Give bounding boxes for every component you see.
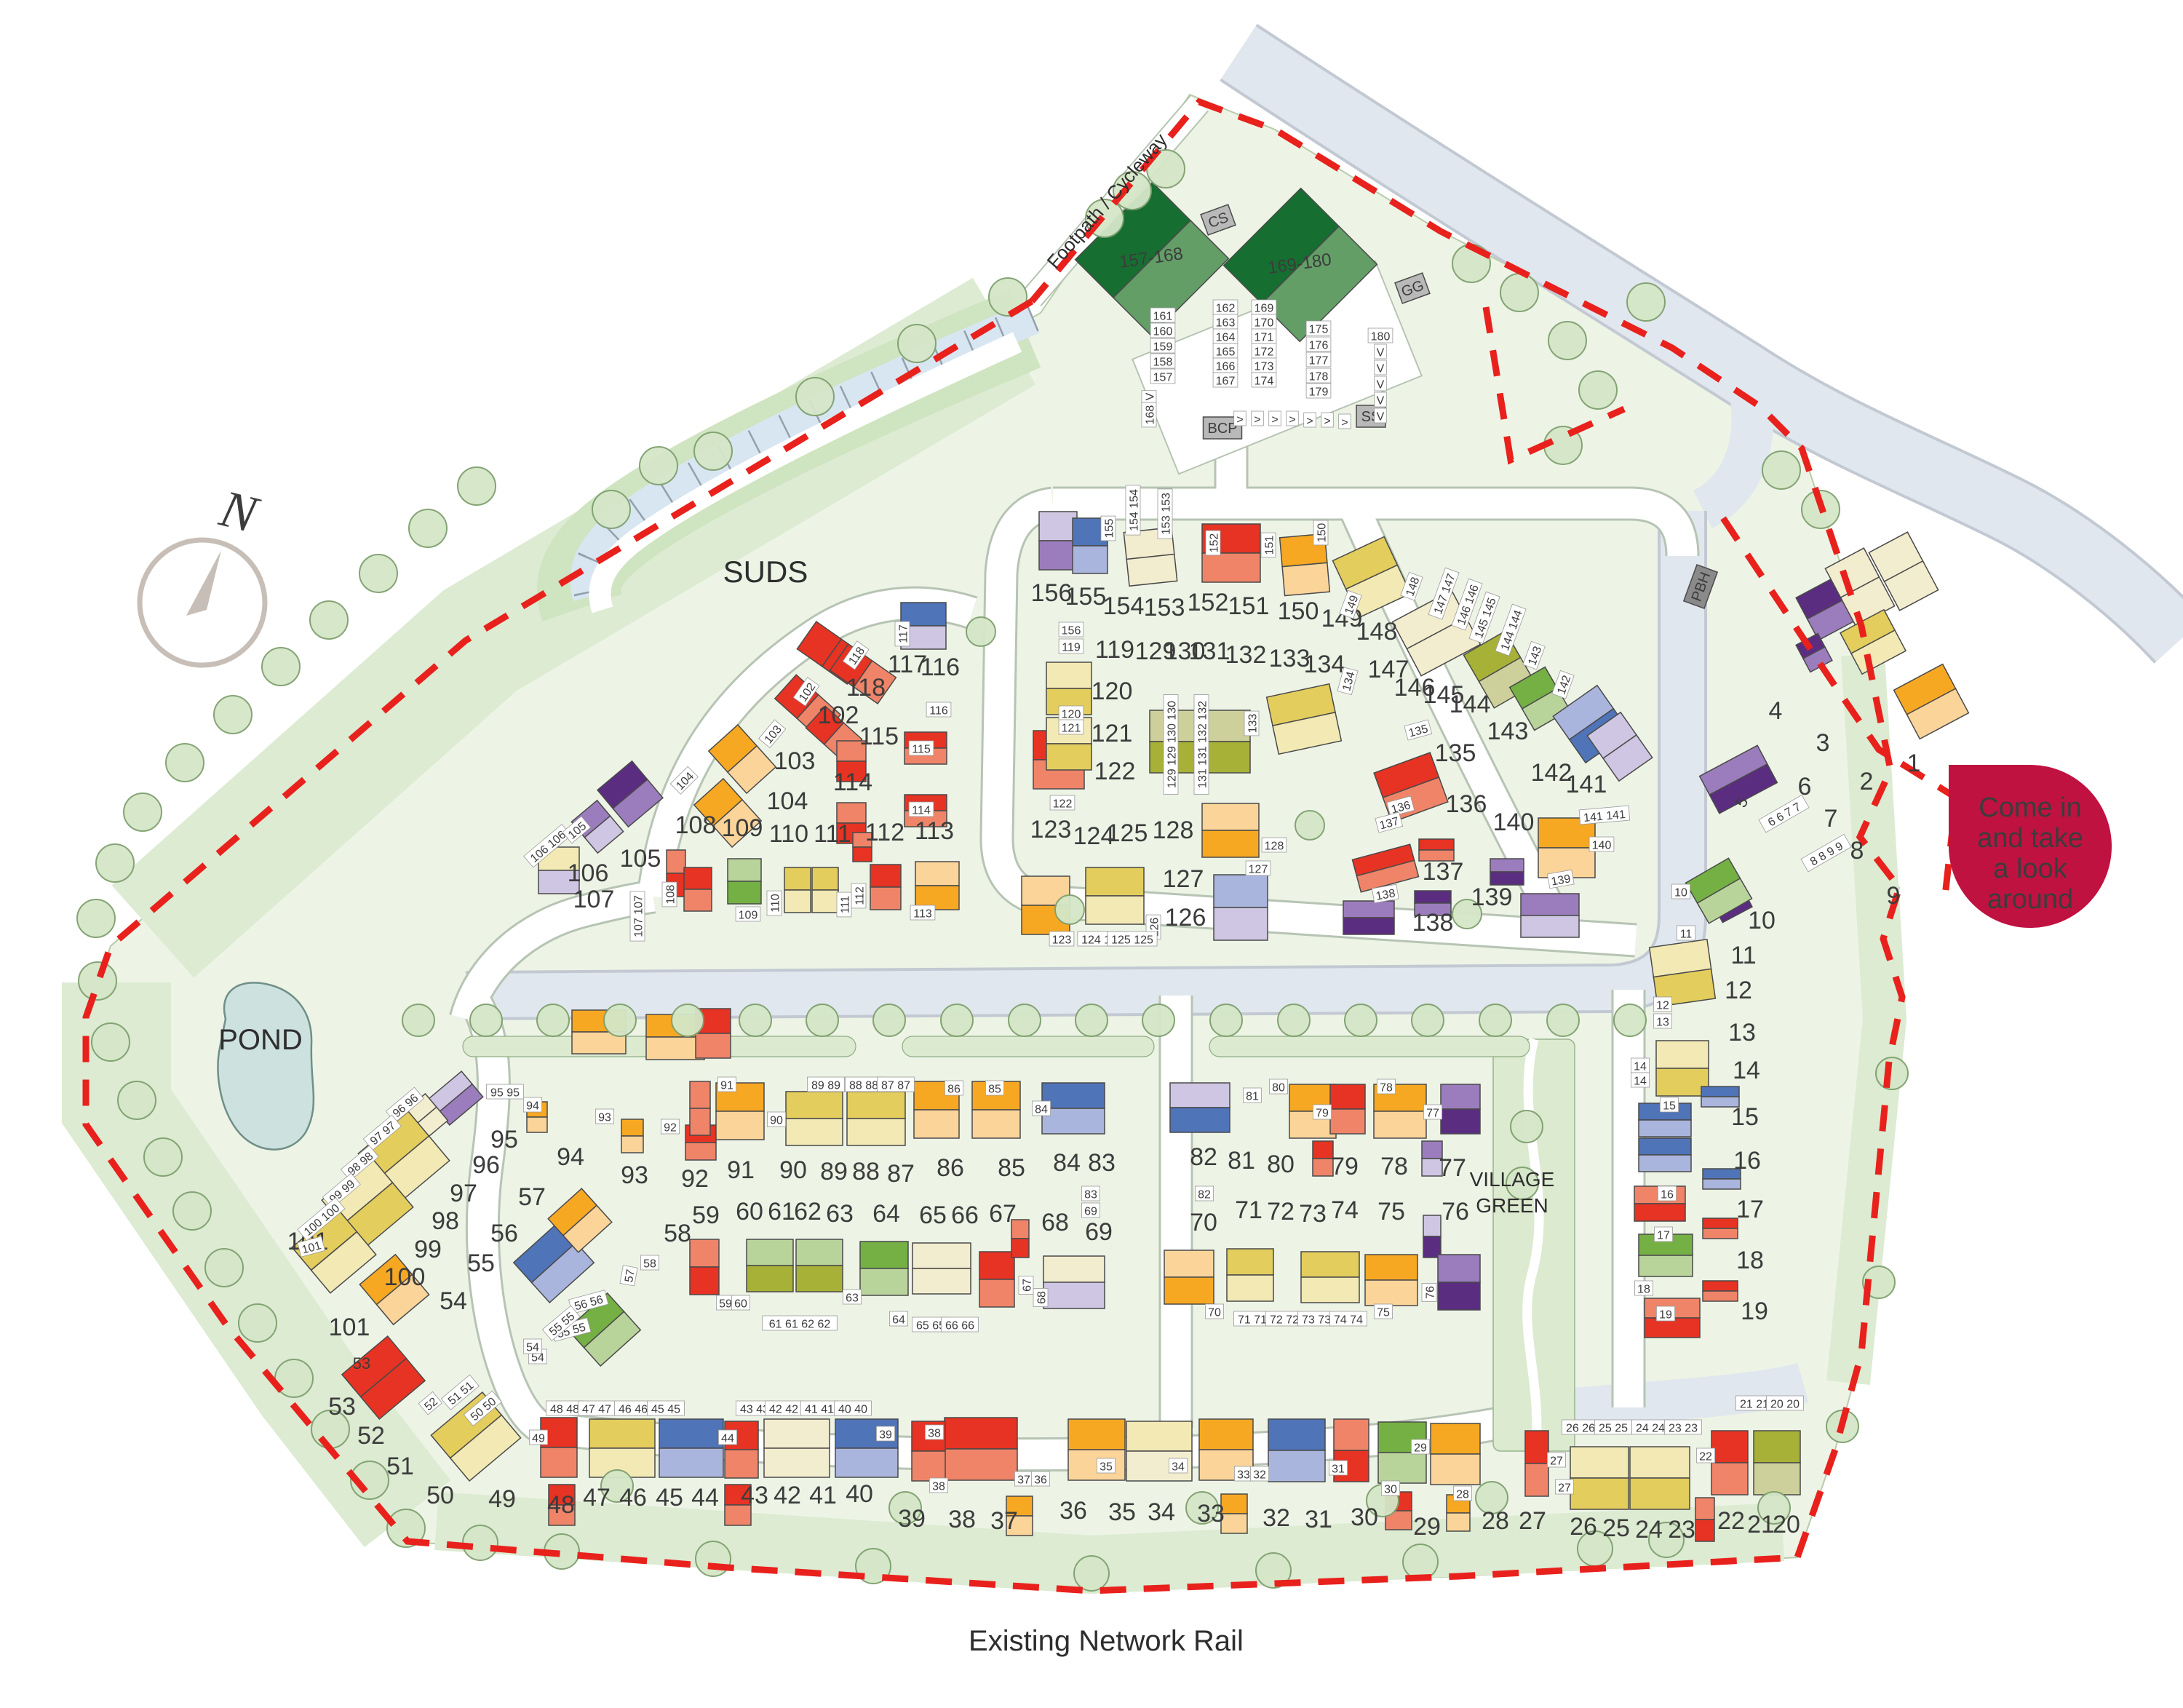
parking-bay-number: 111 xyxy=(837,892,852,917)
tree-icon xyxy=(1548,322,1586,360)
village-green-label-2: GREEN xyxy=(1476,1194,1548,1217)
svg-text:108: 108 xyxy=(665,885,677,905)
svg-text:>: > xyxy=(1324,416,1330,428)
plot-number: 97 xyxy=(450,1180,477,1207)
parking-bay-number: 171 xyxy=(1252,329,1276,344)
svg-text:34: 34 xyxy=(1172,1461,1185,1474)
plot-number: 142 xyxy=(1531,759,1572,787)
svg-text:27: 27 xyxy=(1558,1482,1571,1495)
plot-number: 94 xyxy=(557,1143,584,1171)
house xyxy=(1221,1494,1247,1533)
svg-text:61 61 62 62: 61 61 62 62 xyxy=(769,1319,831,1331)
svg-text:>: > xyxy=(1289,414,1295,426)
svg-text:151: 151 xyxy=(1264,536,1276,555)
svg-text:117: 117 xyxy=(898,624,910,643)
house xyxy=(1490,859,1524,885)
plot-number: 57 xyxy=(518,1183,546,1211)
svg-text:171: 171 xyxy=(1254,332,1274,344)
parking-bay-number: 128 xyxy=(1262,838,1287,853)
plot-number: 126 xyxy=(1165,904,1206,932)
house xyxy=(1164,1250,1214,1304)
plot-number: 108 xyxy=(675,811,717,839)
tree-icon xyxy=(898,325,936,362)
tree-icon xyxy=(458,467,496,505)
parking-bay-number: 37 xyxy=(1014,1471,1033,1487)
parking-bay-number: 45 45 xyxy=(648,1401,685,1416)
plot-number: 123 xyxy=(1030,816,1072,843)
plot-number: 117 xyxy=(888,651,927,678)
tree-icon xyxy=(592,490,630,528)
parking-bay-number: 28 xyxy=(1453,1486,1471,1501)
tree-icon xyxy=(1579,371,1617,409)
svg-text:140: 140 xyxy=(1592,840,1612,852)
plot-number: 80 xyxy=(1267,1151,1295,1178)
parking-bay-number: 165 xyxy=(1213,343,1238,359)
parking-bay-number: 14 xyxy=(1631,1073,1649,1088)
svg-text:17: 17 xyxy=(1657,1230,1670,1242)
svg-text:41 41: 41 41 xyxy=(805,1404,834,1416)
parking-bay-number: 14 xyxy=(1631,1058,1649,1073)
house xyxy=(1365,1255,1417,1306)
house xyxy=(847,1092,905,1145)
plot-number: 64 xyxy=(872,1200,900,1228)
tree-icon xyxy=(1295,811,1324,840)
plot-number: 61 xyxy=(768,1198,795,1226)
svg-text:164: 164 xyxy=(1216,332,1236,344)
svg-text:168: 168 xyxy=(1145,405,1157,425)
parking-bay-number: 180 xyxy=(1368,328,1393,343)
parking-bay-number: 25 25 xyxy=(1595,1420,1632,1435)
svg-text:67: 67 xyxy=(1022,1279,1034,1292)
parking-bay-number: 121 xyxy=(1059,720,1083,735)
parking-bay-number: 40 40 xyxy=(835,1401,872,1416)
parking-bay-number: 152 xyxy=(1206,531,1221,555)
parking-bay-number: 75 xyxy=(1374,1304,1392,1319)
parking-bay-number: 170 xyxy=(1252,314,1276,330)
parking-bay-number: 107 107 xyxy=(630,891,645,941)
plot-number: 76 xyxy=(1442,1198,1469,1226)
svg-text:29: 29 xyxy=(1414,1442,1427,1455)
parking-bay-number: > xyxy=(1321,413,1334,428)
house xyxy=(1711,1431,1748,1495)
parking-bay-number: V xyxy=(1375,408,1387,424)
svg-text:112: 112 xyxy=(854,886,867,905)
parking-bay-number: 119 xyxy=(1059,639,1083,654)
tree-icon xyxy=(275,1359,313,1397)
parking-bay-number: 63 xyxy=(843,1290,861,1305)
svg-text:131 131 132 132: 131 131 132 132 xyxy=(1197,701,1209,788)
parking-bay-number: 120 xyxy=(1059,706,1083,721)
house xyxy=(786,1092,843,1145)
tree-icon xyxy=(696,1541,731,1576)
parking-bay-number: 177 xyxy=(1306,352,1331,368)
parking-bay-number: 31 xyxy=(1329,1461,1347,1476)
parking-bay-number: 166 xyxy=(1213,358,1238,373)
plot-number: 93 xyxy=(621,1161,648,1189)
house xyxy=(1170,1083,1230,1132)
tree-icon xyxy=(239,1304,277,1342)
svg-text:154 154: 154 154 xyxy=(1129,489,1141,531)
plot-number: 89 xyxy=(820,1158,848,1185)
badge-line-3: a look xyxy=(1993,854,2067,884)
plot-number: 121 xyxy=(1091,720,1133,747)
parking-bay-number: 27 xyxy=(1555,1479,1573,1495)
parking-bay-number: 42 42 xyxy=(766,1401,803,1416)
svg-text:38: 38 xyxy=(932,1481,945,1493)
svg-text:166: 166 xyxy=(1216,361,1236,373)
parking-bay-number: 155 xyxy=(1101,516,1116,541)
plot-number: 74 xyxy=(1331,1196,1359,1224)
svg-text:169: 169 xyxy=(1254,303,1274,315)
parking-bay-number: > xyxy=(1339,414,1351,429)
plot-number: 131 xyxy=(1189,637,1230,665)
rail-label: Existing Network Rail xyxy=(969,1625,1244,1657)
house xyxy=(1267,684,1342,755)
svg-text:10: 10 xyxy=(1674,887,1687,899)
house xyxy=(764,1419,830,1477)
svg-text:15: 15 xyxy=(1663,1100,1676,1113)
parking-bay-number: 38 xyxy=(925,1425,943,1440)
svg-text:77: 77 xyxy=(1426,1108,1439,1120)
svg-text:V: V xyxy=(1377,363,1385,376)
house xyxy=(796,1239,843,1292)
tree-icon xyxy=(1762,451,1800,489)
house xyxy=(1343,901,1394,934)
svg-text:116: 116 xyxy=(929,705,948,718)
parking-bay-number: 173 xyxy=(1252,358,1276,373)
parking-bay-number: 61 61 62 62 xyxy=(763,1316,838,1331)
plot-number: 38 xyxy=(948,1506,976,1533)
parking-bay-number: 71 71 xyxy=(1234,1311,1271,1327)
parking-bay-number: 109 xyxy=(736,907,760,922)
parking-bay-number: 46 46 xyxy=(615,1401,652,1416)
parking-bay-number: 117 xyxy=(895,621,910,646)
parking-bay-number: 34 xyxy=(1169,1458,1187,1474)
svg-text:32: 32 xyxy=(1253,1469,1266,1482)
svg-text:33: 33 xyxy=(1237,1469,1250,1482)
tree-icon xyxy=(672,1004,704,1036)
house xyxy=(1330,1084,1365,1134)
plot-number: 11 xyxy=(1730,942,1756,969)
svg-text:43 43: 43 43 xyxy=(740,1404,769,1416)
svg-text:23 23: 23 23 xyxy=(1669,1423,1698,1435)
plot-number: 45 xyxy=(656,1484,683,1512)
svg-text:59: 59 xyxy=(719,1298,732,1311)
parking-bay-number: 116 xyxy=(926,702,951,718)
tree-icon xyxy=(79,962,116,1000)
svg-text:13: 13 xyxy=(1656,1017,1669,1029)
svg-text:179: 179 xyxy=(1309,386,1329,399)
tree-icon xyxy=(1074,1556,1109,1591)
parking-bay-number: 18 xyxy=(1634,1281,1653,1296)
parking-bay-number: 167 xyxy=(1213,373,1238,388)
parking-bay-number: 150 xyxy=(1313,520,1329,545)
plot-number: 86 xyxy=(937,1154,964,1182)
svg-text:16: 16 xyxy=(1661,1189,1674,1201)
svg-text:71 71: 71 71 xyxy=(1238,1314,1267,1327)
svg-text:>: > xyxy=(1341,417,1348,429)
svg-text:72 72: 72 72 xyxy=(1270,1314,1299,1327)
svg-text:158: 158 xyxy=(1153,357,1173,369)
svg-text:91: 91 xyxy=(720,1080,733,1092)
plot-number: 105 xyxy=(620,845,661,873)
parking-bay-number: 48 48 xyxy=(546,1401,584,1416)
plot-number: 27 xyxy=(1519,1507,1546,1535)
svg-text:V: V xyxy=(1377,379,1385,392)
plot-number: 69 xyxy=(1085,1218,1113,1246)
tree-icon xyxy=(1278,1004,1310,1036)
tree-icon xyxy=(1614,1004,1646,1036)
plot-number: 47 xyxy=(583,1484,611,1512)
svg-text:174: 174 xyxy=(1254,376,1274,388)
tree-icon xyxy=(409,509,447,547)
parking-bay-number: 159 xyxy=(1150,338,1175,354)
plot-number: 26 xyxy=(1570,1513,1597,1541)
svg-text:65 65: 65 65 xyxy=(916,1320,945,1332)
parking-bay-number: 160 xyxy=(1150,323,1175,338)
parking-bay-number: 32 xyxy=(1250,1466,1268,1482)
parking-bay-number: 108 xyxy=(662,882,677,907)
svg-text:>: > xyxy=(1306,416,1313,428)
plot-number: 30 xyxy=(1351,1504,1378,1531)
plot-number: 39 xyxy=(898,1505,926,1533)
tree-icon xyxy=(1403,1544,1438,1579)
parking-bay-number: 17 xyxy=(1654,1227,1672,1242)
parking-bay-number: 29 xyxy=(1411,1439,1429,1455)
house xyxy=(728,859,761,904)
tree-icon xyxy=(262,648,300,686)
svg-text:92: 92 xyxy=(664,1122,677,1135)
house xyxy=(1695,1498,1714,1541)
parking-bay-number: > xyxy=(1234,411,1246,426)
svg-text:161: 161 xyxy=(1153,311,1173,323)
svg-text:85: 85 xyxy=(988,1084,1001,1096)
plot-number: 25 xyxy=(1602,1514,1630,1542)
plot-number: 44 xyxy=(691,1484,719,1512)
house xyxy=(812,867,838,913)
site-plan-page: { "title":"Development site plan", "labe… xyxy=(0,0,2183,1708)
plot-number: 90 xyxy=(779,1156,807,1184)
parking-bay-number: 156 xyxy=(1059,622,1083,637)
plot-number: 127 xyxy=(1163,865,1204,893)
tree-icon xyxy=(1511,1111,1543,1143)
svg-text:86: 86 xyxy=(947,1084,961,1096)
parking-bay-number: 168 xyxy=(1142,402,1157,427)
plot-number: 99 xyxy=(414,1236,442,1263)
plot-number: 17 xyxy=(1736,1196,1764,1223)
plot-number: 83 xyxy=(1088,1149,1116,1177)
house xyxy=(1525,1431,1548,1496)
svg-text:74 74: 74 74 xyxy=(1334,1314,1363,1327)
svg-text:>: > xyxy=(1236,414,1243,426)
plot-number: 147 xyxy=(1368,656,1409,683)
pond-label: POND xyxy=(218,1024,303,1056)
svg-text:76: 76 xyxy=(1425,1286,1437,1299)
svg-text:44: 44 xyxy=(721,1433,734,1445)
plot-number: 102 xyxy=(818,702,859,729)
house xyxy=(1703,1281,1738,1301)
plot-number: 125 xyxy=(1107,819,1148,847)
parking-bay-number: 122 xyxy=(1050,795,1075,811)
svg-text:19: 19 xyxy=(1659,1309,1672,1322)
plot-number: 20 xyxy=(1773,1511,1800,1538)
plot-number: 53 xyxy=(353,1354,370,1373)
svg-text:21 21: 21 21 xyxy=(1740,1399,1769,1411)
parking-bay-number: 113 xyxy=(910,905,935,921)
compass-needle-icon xyxy=(186,550,221,616)
house xyxy=(979,1252,1014,1307)
plot-number: 53 xyxy=(328,1393,356,1421)
svg-text:45 45: 45 45 xyxy=(651,1404,680,1416)
plot-number: 3 xyxy=(1816,729,1830,757)
parking-bay-number: 41 41 xyxy=(801,1401,838,1416)
plot-number: 75 xyxy=(1377,1198,1405,1226)
plot-number: 43 xyxy=(741,1482,768,1509)
plot-number: 22 xyxy=(1717,1507,1745,1535)
parking-bay-number: 89 89 xyxy=(808,1077,845,1092)
svg-text:83: 83 xyxy=(1084,1189,1097,1201)
svg-text:42 42: 42 42 xyxy=(769,1404,798,1416)
parking-bay-number: 15 xyxy=(1660,1097,1678,1113)
svg-text:170: 170 xyxy=(1254,317,1274,330)
parking-bay-number: 13 xyxy=(1653,1014,1671,1029)
plot-number: 143 xyxy=(1487,718,1529,745)
badge-line-1: Come in xyxy=(1979,793,2082,823)
house xyxy=(1570,1447,1629,1509)
svg-text:122: 122 xyxy=(1053,798,1073,811)
badge-line-4: around xyxy=(1987,884,2073,915)
parking-bay-number: 115 xyxy=(909,741,934,756)
plot-number: 62 xyxy=(794,1198,822,1226)
parking-bay-number: 24 24 xyxy=(1632,1420,1669,1435)
svg-text:87 87: 87 87 xyxy=(881,1080,910,1092)
svg-text:24 24: 24 24 xyxy=(1636,1423,1665,1435)
svg-text:89 89: 89 89 xyxy=(811,1080,840,1092)
plot-number: 23 xyxy=(1668,1516,1695,1544)
plot-number: 15 xyxy=(1731,1103,1759,1131)
parking-bay-number: 95 95 xyxy=(487,1084,524,1100)
svg-text:>: > xyxy=(1254,414,1260,426)
parking-bay-number: 161 xyxy=(1150,308,1175,323)
house xyxy=(1313,1141,1333,1176)
badge-line-2: and take xyxy=(1977,823,2083,854)
tree-icon xyxy=(1009,1004,1041,1036)
plot-number: 28 xyxy=(1482,1507,1509,1535)
plot-number: 84 xyxy=(1053,1149,1081,1177)
parking-bay-number: 176 xyxy=(1306,337,1331,352)
house xyxy=(860,1242,908,1295)
svg-text:78: 78 xyxy=(1380,1082,1393,1095)
svg-text:31: 31 xyxy=(1332,1463,1345,1476)
plot-number: 37 xyxy=(990,1507,1018,1535)
svg-text:95 95: 95 95 xyxy=(490,1087,520,1100)
tree-icon xyxy=(1627,283,1665,321)
plot-number: 31 xyxy=(1305,1506,1332,1533)
plot-number: 29 xyxy=(1413,1513,1441,1541)
house xyxy=(589,1419,655,1477)
parking-bay-number: 110 xyxy=(767,891,782,915)
village-green-label-1: VILLAGE xyxy=(1470,1168,1555,1191)
svg-text:40 40: 40 40 xyxy=(838,1404,867,1416)
svg-text:119: 119 xyxy=(1062,642,1081,654)
svg-text:57: 57 xyxy=(623,1268,637,1284)
plot-number: 136 xyxy=(1446,790,1487,818)
parking-bay-number: 67 xyxy=(1019,1276,1034,1294)
tree-icon xyxy=(463,1525,498,1560)
svg-text:V: V xyxy=(1377,395,1385,408)
parking-bay-number: 129 129 130 130 xyxy=(1164,695,1179,795)
svg-text:90: 90 xyxy=(770,1115,783,1127)
svg-text:>: > xyxy=(1271,414,1278,426)
plot-number: 67 xyxy=(989,1200,1017,1228)
parking-bay-number: 125 125 xyxy=(1108,932,1157,947)
svg-text:163: 163 xyxy=(1216,317,1236,330)
badge: Come in and take a look around xyxy=(1949,765,2112,928)
plot-number: 151 xyxy=(1228,592,1270,620)
plot-number: 48 xyxy=(547,1491,575,1519)
svg-text:79: 79 xyxy=(1316,1108,1329,1120)
plot-number: 119 xyxy=(1095,636,1134,664)
plot-number: 33 xyxy=(1197,1500,1225,1528)
parking-bay-number: 22 xyxy=(1696,1448,1714,1463)
parking-bay-number: 172 xyxy=(1252,343,1276,359)
plot-number: 24 xyxy=(1635,1516,1663,1544)
tree-icon xyxy=(966,617,995,646)
tree-icon xyxy=(92,1023,130,1061)
plot-number: 41 xyxy=(809,1482,837,1509)
plot-number: 139 xyxy=(1471,883,1513,911)
plot-number: 111 xyxy=(814,820,851,848)
parking-bay-number: 82 xyxy=(1195,1186,1213,1201)
house xyxy=(1227,1249,1273,1301)
svg-text:64: 64 xyxy=(892,1314,905,1327)
parking-bay-number: 157 xyxy=(1150,369,1175,384)
plot-number: 78 xyxy=(1380,1153,1408,1180)
plot-number: 101 xyxy=(329,1314,370,1341)
svg-text:127: 127 xyxy=(1249,864,1268,876)
svg-text:49: 49 xyxy=(532,1433,545,1445)
parking-bay-number: 87 87 xyxy=(878,1077,915,1092)
parking-bay-number: 19 xyxy=(1656,1306,1674,1322)
tree-icon xyxy=(796,378,834,416)
parking-bay-number: 72 72 xyxy=(1266,1311,1303,1327)
plot-number: 114 xyxy=(833,768,872,796)
svg-text:120: 120 xyxy=(1062,709,1081,721)
plot-number: 4 xyxy=(1769,697,1783,725)
svg-text:39: 39 xyxy=(879,1429,892,1442)
plot-number: 156 xyxy=(1031,579,1073,607)
parking-bay-number: 93 xyxy=(595,1109,613,1124)
svg-text:35: 35 xyxy=(1100,1461,1113,1474)
svg-text:84: 84 xyxy=(1035,1104,1048,1116)
tree-icon xyxy=(77,899,115,937)
plot-number: 140 xyxy=(1493,809,1535,836)
svg-text:125 125: 125 125 xyxy=(1111,934,1153,947)
plot-number: 118 xyxy=(846,674,886,702)
house xyxy=(945,1418,1017,1480)
house xyxy=(690,1081,710,1135)
svg-text:155: 155 xyxy=(1104,519,1116,539)
parking-bay-number: 44 xyxy=(718,1430,736,1445)
parking-bay-number: 36 xyxy=(1031,1471,1049,1487)
plot-number: 40 xyxy=(846,1480,873,1508)
plot-number: 82 xyxy=(1190,1143,1217,1171)
plot-number: 95 xyxy=(490,1126,518,1153)
svg-text:18: 18 xyxy=(1637,1284,1650,1296)
plot-number: 66 xyxy=(951,1201,979,1229)
svg-text:37: 37 xyxy=(1017,1474,1030,1487)
svg-text:153 153: 153 153 xyxy=(1161,493,1173,535)
